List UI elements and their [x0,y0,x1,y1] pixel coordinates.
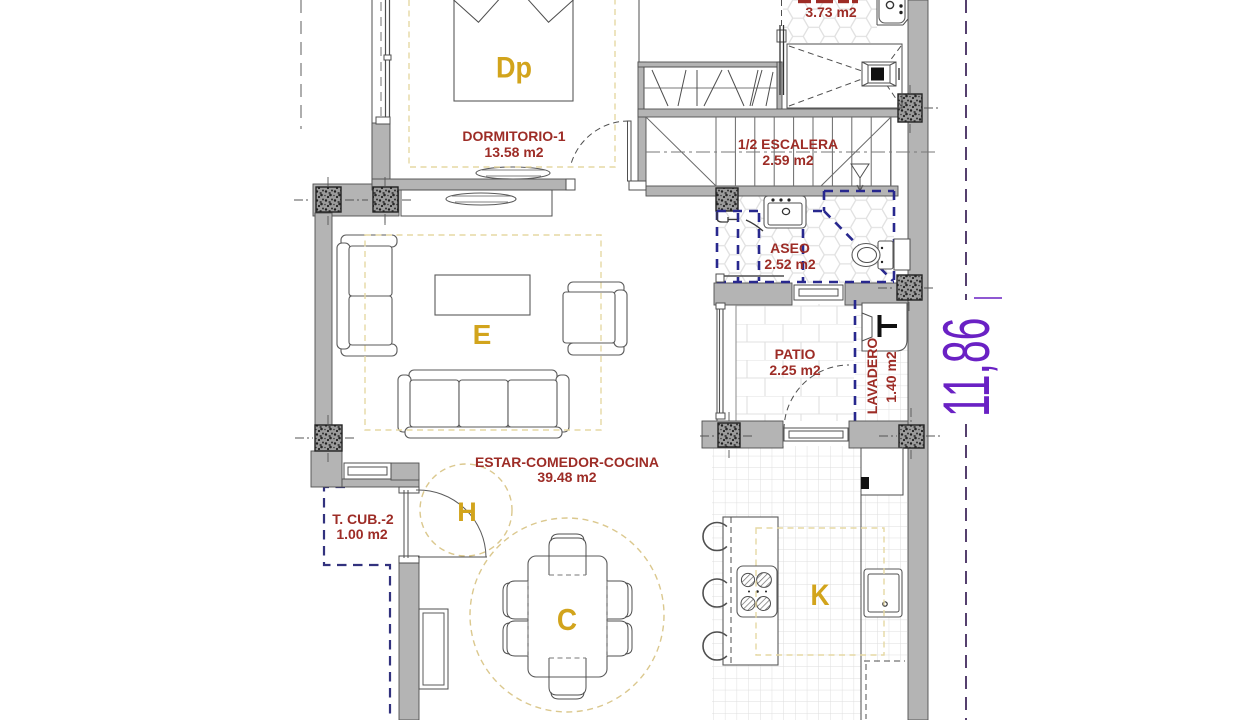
svg-text:3.73 m2: 3.73 m2 [805,4,857,20]
svg-text:1.40 m2: 1.40 m2 [883,351,899,403]
svg-text:1.00 m2: 1.00 m2 [336,526,388,542]
svg-text:2.59 m2: 2.59 m2 [762,152,814,168]
svg-text:2.25 m2: 2.25 m2 [769,362,821,378]
svg-text:ASEO: ASEO [770,240,810,256]
svg-text:Dp: Dp [496,51,532,85]
svg-text:LAVADERO: LAVADERO [864,338,880,415]
svg-text:DORMITORIO-1: DORMITORIO-1 [462,128,565,144]
svg-text:1/2 ESCALERA: 1/2 ESCALERA [738,136,838,152]
svg-text:2.52 m2: 2.52 m2 [764,256,816,272]
svg-text:39.48 m2: 39.48 m2 [537,469,596,485]
svg-text:11,86: 11,86 [929,318,1004,417]
svg-text:K: K [810,577,830,611]
svg-text:ESTAR-COMEDOR-COCINA: ESTAR-COMEDOR-COCINA [475,454,659,470]
svg-text:T. CUB.-2: T. CUB.-2 [332,511,394,527]
svg-text:H: H [457,497,477,527]
svg-text:13.58 m2: 13.58 m2 [484,144,543,160]
svg-text:E: E [473,319,492,350]
svg-text:C: C [557,603,577,638]
svg-text:PATIO: PATIO [775,346,816,362]
